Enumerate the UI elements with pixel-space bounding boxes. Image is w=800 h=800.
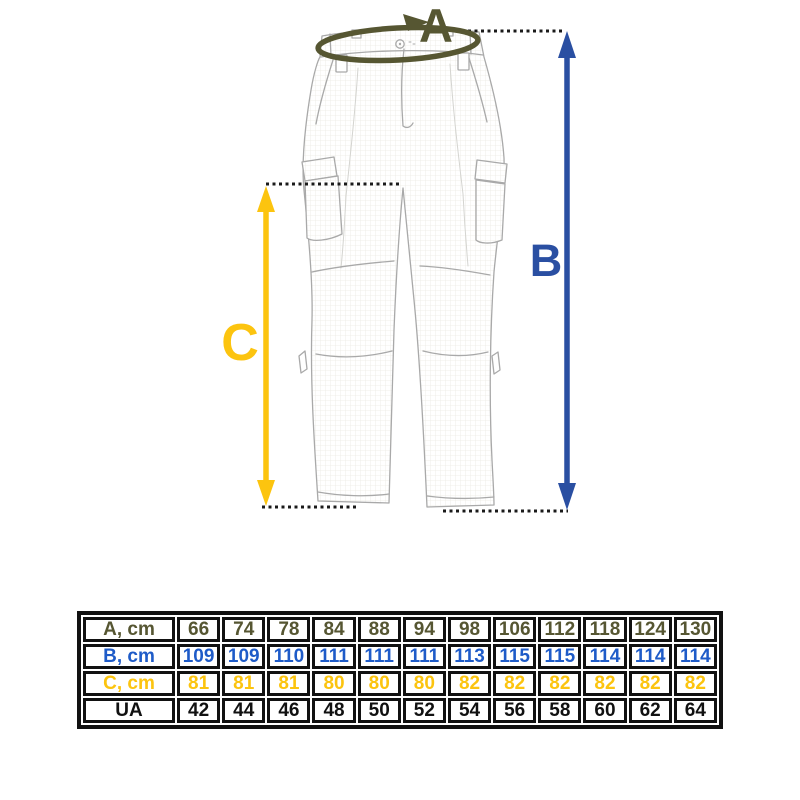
size-value-cell: 118 <box>583 617 626 642</box>
size-value-cell: 109 <box>177 644 220 669</box>
size-value-cell: 124 <box>629 617 672 642</box>
size-value-cell: 58 <box>538 698 581 723</box>
size-table: A, cm66747884889498106112118124130B, cm1… <box>77 611 723 729</box>
table-row: UA424446485052545658606264 <box>83 698 717 723</box>
size-value-cell: 112 <box>538 617 581 642</box>
row-label: UA <box>83 698 175 723</box>
size-value-cell: 50 <box>358 698 401 723</box>
arrow-b-head-top-icon <box>558 31 576 58</box>
size-value-cell: 81 <box>267 671 310 696</box>
size-value-cell: 111 <box>358 644 401 669</box>
size-value-cell: 74 <box>222 617 265 642</box>
size-value-cell: 64 <box>674 698 717 723</box>
cargo-pocket-right <box>476 180 505 243</box>
size-value-cell: 109 <box>222 644 265 669</box>
label-c: C <box>221 314 259 372</box>
shin-tab-right <box>492 352 500 374</box>
cargo-pocket-left <box>305 176 342 240</box>
arrow-c-head-bottom-icon <box>257 480 275 506</box>
label-a: A <box>419 0 453 52</box>
row-label: C, cm <box>83 671 175 696</box>
size-value-cell: 130 <box>674 617 717 642</box>
row-label: B, cm <box>83 644 175 669</box>
belt-loop-right <box>458 53 469 70</box>
cargo-pocket-flap-right <box>475 160 507 183</box>
size-value-cell: 81 <box>177 671 220 696</box>
table-row: C, cm818181808080828282828282 <box>83 671 717 696</box>
size-value-cell: 115 <box>493 644 536 669</box>
table-row: B, cm10910911011111111111311511511411411… <box>83 644 717 669</box>
size-value-cell: 113 <box>448 644 491 669</box>
label-b: B <box>530 235 563 286</box>
size-value-cell: 84 <box>312 617 355 642</box>
size-value-cell: 80 <box>312 671 355 696</box>
pants-sketch <box>299 28 507 507</box>
measure-c: C <box>221 186 275 506</box>
size-value-cell: 98 <box>448 617 491 642</box>
size-value-cell: 80 <box>403 671 446 696</box>
pants-measurement-diagram: A B C <box>0 0 800 600</box>
size-value-cell: 81 <box>222 671 265 696</box>
size-value-cell: 78 <box>267 617 310 642</box>
size-value-cell: 82 <box>629 671 672 696</box>
size-value-cell: 44 <box>222 698 265 723</box>
size-value-cell: 42 <box>177 698 220 723</box>
measure-b: B <box>530 31 576 510</box>
size-value-cell: 94 <box>403 617 446 642</box>
size-value-cell: 106 <box>493 617 536 642</box>
size-value-cell: 111 <box>312 644 355 669</box>
arrow-b-head-bottom-icon <box>558 483 576 510</box>
size-value-cell: 111 <box>403 644 446 669</box>
arrow-c-head-top-icon <box>257 186 275 212</box>
size-value-cell: 80 <box>358 671 401 696</box>
size-value-cell: 60 <box>583 698 626 723</box>
size-value-cell: 115 <box>538 644 581 669</box>
size-value-cell: 54 <box>448 698 491 723</box>
size-value-cell: 66 <box>177 617 220 642</box>
size-value-cell: 114 <box>583 644 626 669</box>
size-table-body: A, cm66747884889498106112118124130B, cm1… <box>83 617 717 723</box>
size-value-cell: 88 <box>358 617 401 642</box>
size-chart-image: A B C A, cm66747884889498106112118124130… <box>0 0 800 800</box>
size-value-cell: 114 <box>629 644 672 669</box>
size-value-cell: 56 <box>493 698 536 723</box>
waist-button-hole <box>399 43 401 45</box>
table-row: A, cm66747884889498106112118124130 <box>83 617 717 642</box>
row-label: A, cm <box>83 617 175 642</box>
size-value-cell: 48 <box>312 698 355 723</box>
size-value-cell: 82 <box>493 671 536 696</box>
size-value-cell: 82 <box>583 671 626 696</box>
size-value-cell: 82 <box>448 671 491 696</box>
size-value-cell: 62 <box>629 698 672 723</box>
size-value-cell: 46 <box>267 698 310 723</box>
size-value-cell: 82 <box>674 671 717 696</box>
shin-tab-left <box>299 351 307 373</box>
size-value-cell: 110 <box>267 644 310 669</box>
size-value-cell: 114 <box>674 644 717 669</box>
size-value-cell: 52 <box>403 698 446 723</box>
size-value-cell: 82 <box>538 671 581 696</box>
